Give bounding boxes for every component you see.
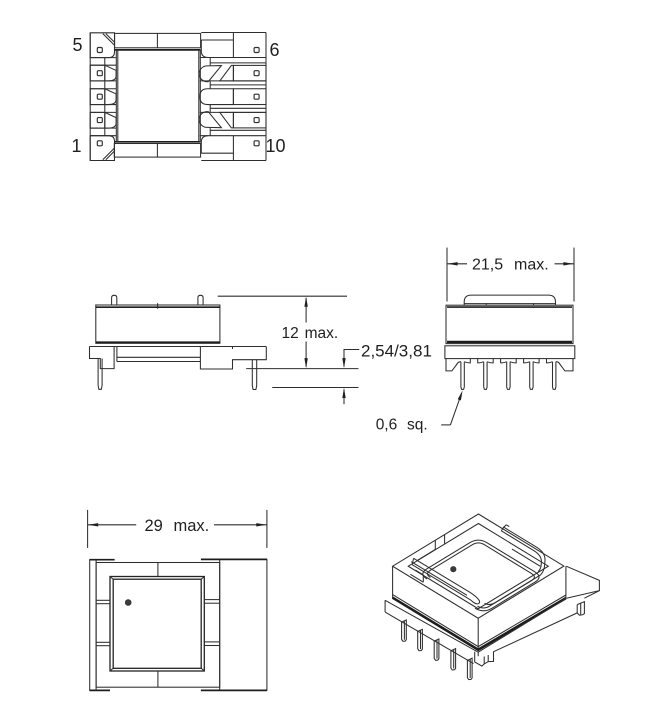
svg-text:29max.: 29max. [145, 517, 210, 535]
svg-text:1: 1 [71, 136, 81, 156]
svg-text:21,5max.: 21,5max. [472, 257, 549, 274]
svg-text:6: 6 [270, 40, 280, 60]
svg-text:2,54/3,81: 2,54/3,81 [361, 341, 432, 360]
svg-text:5: 5 [72, 35, 82, 55]
svg-text:10: 10 [266, 136, 286, 156]
svg-text:0,6sq.: 0,6sq. [376, 416, 428, 433]
svg-text:12max.: 12max. [282, 325, 339, 342]
